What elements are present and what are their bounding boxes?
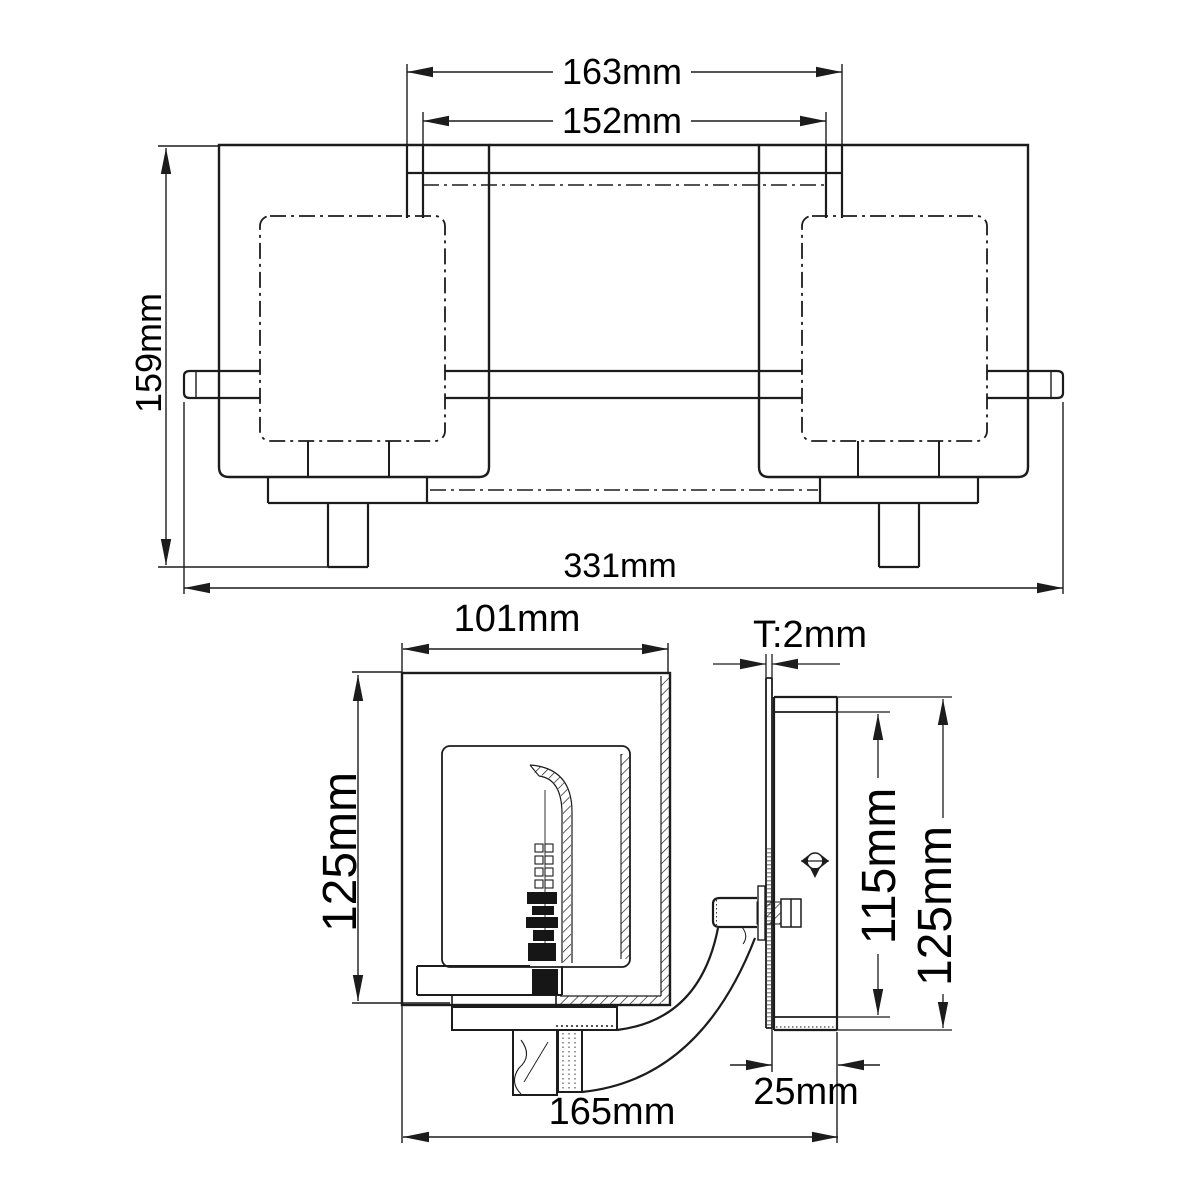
arrow-down-icon: [161, 539, 171, 565]
dim-label-159mm: 159mm: [128, 293, 169, 413]
arrow-right-icon: [642, 644, 668, 654]
dim-label-163mm: 163mm: [562, 51, 682, 92]
dim-label-331mm: 331mm: [563, 547, 676, 585]
dim-backplate-thickness: [713, 654, 840, 678]
arrow-right-icon: [740, 659, 766, 669]
mounting-sheet: [766, 678, 772, 1028]
dim-label-25mm: 25mm: [753, 1071, 859, 1113]
arrow-left-icon: [403, 1132, 429, 1142]
dim-label-152mm: 152mm: [562, 100, 682, 141]
arrow-up-icon: [873, 714, 883, 740]
stem-left: [407, 146, 423, 218]
top-rail: [407, 145, 842, 218]
glass-shade-right: [759, 145, 1028, 477]
arrow-right-icon: [800, 116, 826, 126]
dim-label-125mm-shade: 125mm: [314, 772, 367, 932]
arrow-left-icon: [423, 116, 449, 126]
arrow-left-icon: [184, 583, 210, 593]
arrow-left-icon: [403, 644, 429, 654]
arrow-up-icon: [161, 148, 171, 174]
holder-right: [820, 477, 978, 503]
arrow-down-icon: [873, 989, 883, 1015]
dim-label-115mm: 115mm: [853, 788, 906, 945]
socket-terminal-fins: [535, 844, 553, 888]
arrow-up-icon: [353, 675, 363, 701]
glass-bottom-hatch: [560, 997, 661, 1005]
socket-cup-left: [308, 441, 389, 477]
socket-cup-right: [858, 441, 939, 477]
lock-nut: [781, 899, 801, 927]
arrow-right-icon: [816, 67, 842, 77]
wall-plate: [766, 678, 837, 1030]
diffuser-wall-hatch: [621, 754, 630, 959]
socket-body: [526, 892, 558, 961]
arrow-left-icon: [772, 659, 798, 669]
tube-flange: [758, 886, 765, 940]
holder-left: [268, 477, 427, 503]
arrow-down-icon: [938, 1002, 948, 1028]
dim-label-t2mm: T:2mm: [753, 614, 867, 656]
inner-diffuser-left: [260, 216, 445, 441]
dim-label-125mm-backplate: 125mm: [909, 826, 962, 986]
stem-right: [826, 146, 842, 218]
glass-wall-hatch: [662, 676, 670, 1005]
lamp-socket: [526, 765, 572, 963]
arrow-right-icon: [812, 1132, 838, 1142]
dim-label-165mm: 165mm: [549, 1091, 676, 1133]
foot-right: [879, 503, 919, 567]
glass-shade-left: [219, 145, 489, 477]
arm-tube: [713, 898, 757, 927]
foot-left: [328, 503, 368, 567]
mounting-bar: [184, 371, 1063, 398]
arm: [558, 886, 801, 1092]
arrow-right-icon: [1037, 583, 1063, 593]
dim-label-101mm: 101mm: [454, 598, 581, 640]
arrow-up-icon: [938, 699, 948, 725]
side-elevation-view: 101mm 125mm 165mm T:2mm 115mm 125mm 25mm: [314, 598, 962, 1143]
technical-drawing-page: 163mm 152mm 159mm 331mm: [0, 0, 1200, 1200]
arrow-left-icon: [407, 67, 433, 77]
dim-backplate-depth: [730, 1028, 880, 1072]
fixture-dimension-drawing: 163mm 152mm 159mm 331mm: [0, 0, 1200, 1200]
screw-icon: [801, 853, 829, 878]
inner-diffuser-right: [802, 216, 987, 441]
arrow-right-icon: [746, 1060, 772, 1070]
arrow-left-icon: [838, 1060, 864, 1070]
dim-shade-depth: [402, 643, 668, 673]
candle-cap-assembly: [417, 966, 617, 1095]
finial-block: [513, 1030, 557, 1095]
arrow-down-icon: [353, 975, 363, 1001]
front-elevation-view: 163mm 152mm 159mm 331mm: [128, 51, 1063, 594]
